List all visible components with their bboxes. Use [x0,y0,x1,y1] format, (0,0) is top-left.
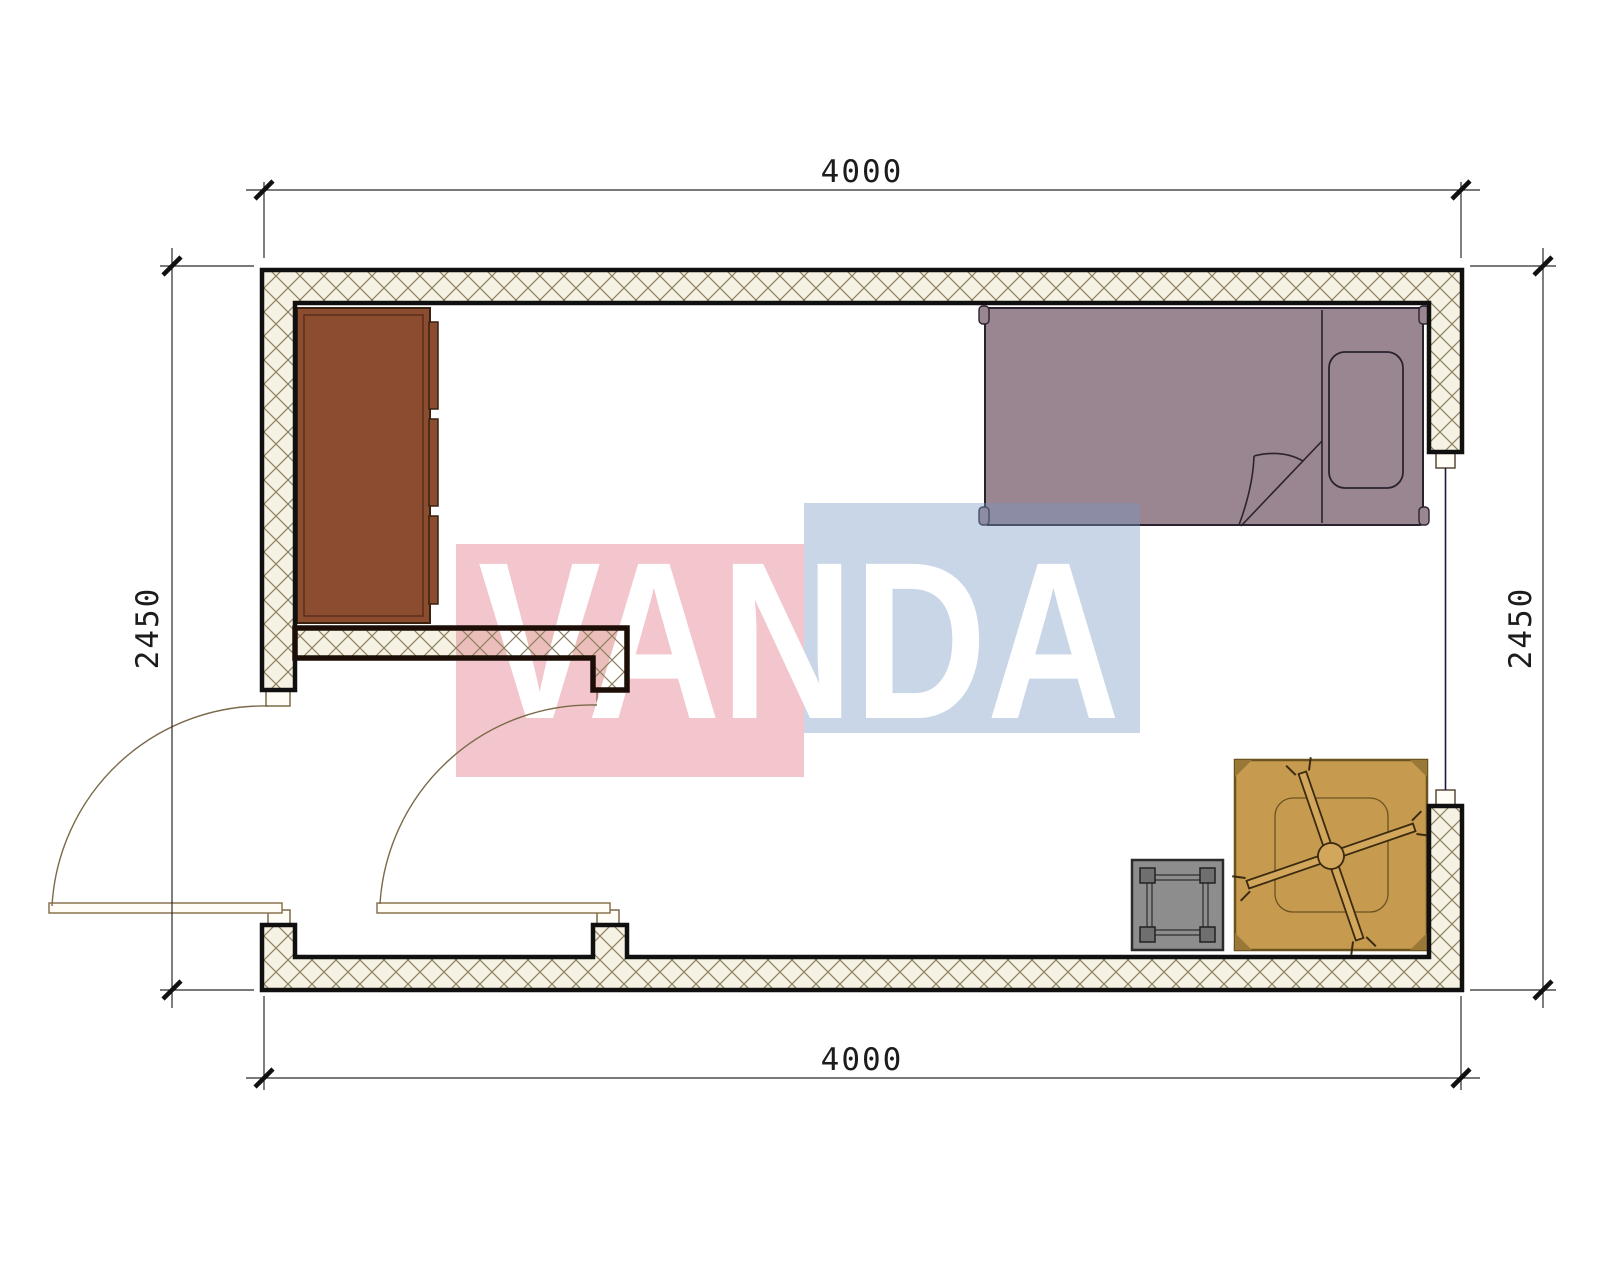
interior-door-leaf [377,903,610,913]
bed-post [1419,507,1429,525]
bed-post [979,306,989,324]
wardrobe-door-panel [429,516,438,604]
floor-plan-page: VANDA 4000 4000 [0,0,1600,1280]
bed [979,306,1429,526]
stool-leg [1140,868,1155,883]
dimension-right: 2450 [1470,248,1556,1008]
door-jamb [266,691,290,706]
wardrobe-door-panel [429,419,438,506]
dimension-label-bottom: 4000 [821,1042,904,1078]
window-jamb [1436,452,1455,468]
entry-door-arc [52,706,268,906]
window-jamb [1436,790,1455,806]
stool-leg [1140,927,1155,942]
stool-leg [1200,927,1215,942]
stool-leg [1200,868,1215,883]
dimension-label-top: 4000 [821,154,904,190]
dimension-label-left: 2450 [130,587,166,670]
dimension-label-right: 2450 [1503,587,1539,670]
table [1204,729,1458,983]
dimension-bottom: 4000 [246,996,1480,1090]
stool [1132,860,1223,950]
wardrobe [297,308,438,623]
bed-pillow [1329,352,1403,488]
dimension-top: 4000 [246,154,1480,258]
entry-door-leaf [49,903,282,913]
wardrobe-body [297,308,430,623]
floor-plan: VANDA 4000 4000 [0,0,1600,1280]
wardrobe-door-panel [429,322,438,409]
dimension-left: 2450 [130,248,254,1008]
